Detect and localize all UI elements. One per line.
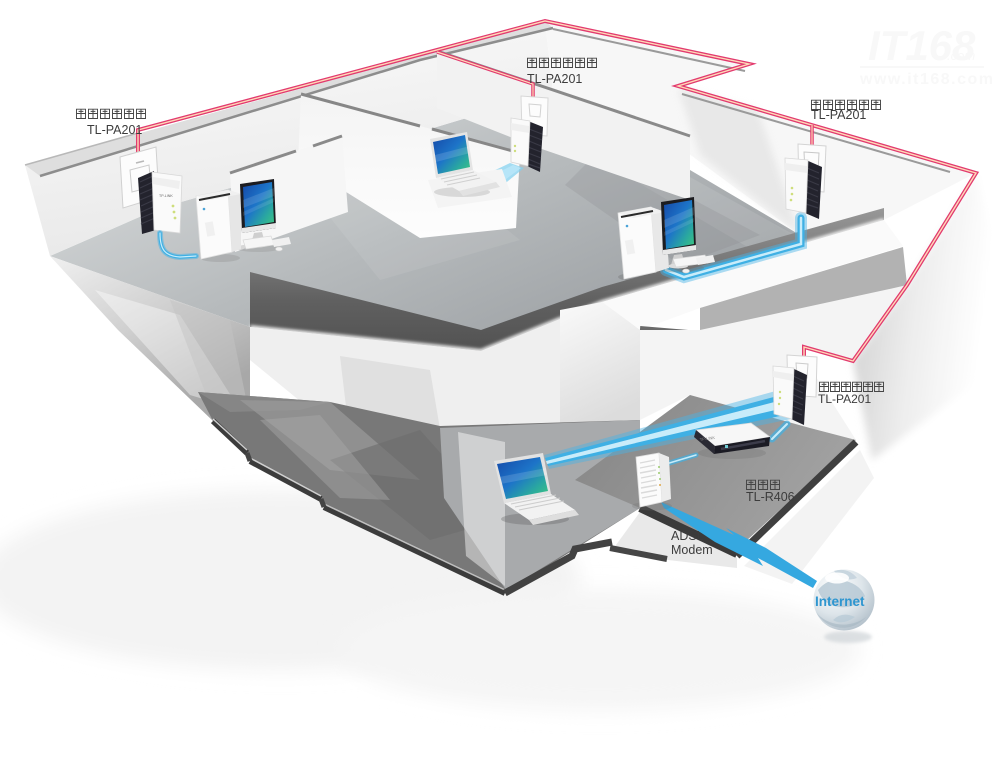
svg-text:.com: .com bbox=[947, 48, 975, 63]
svg-text:TL-R406: TL-R406 bbox=[746, 490, 795, 504]
svg-text:TP-LINK: TP-LINK bbox=[159, 194, 173, 198]
svg-text:www.it168.com: www.it168.com bbox=[859, 71, 992, 88]
svg-text:TL-PA201: TL-PA201 bbox=[527, 72, 582, 86]
svg-text:ADSL: ADSL bbox=[671, 529, 704, 543]
svg-text:TL-PA201: TL-PA201 bbox=[818, 392, 871, 406]
svg-text:TL-PA201: TL-PA201 bbox=[87, 123, 142, 137]
svg-text:Modem: Modem bbox=[671, 543, 713, 557]
svg-text:TL-PA201: TL-PA201 bbox=[811, 108, 866, 122]
svg-text:Internet: Internet bbox=[815, 594, 865, 609]
